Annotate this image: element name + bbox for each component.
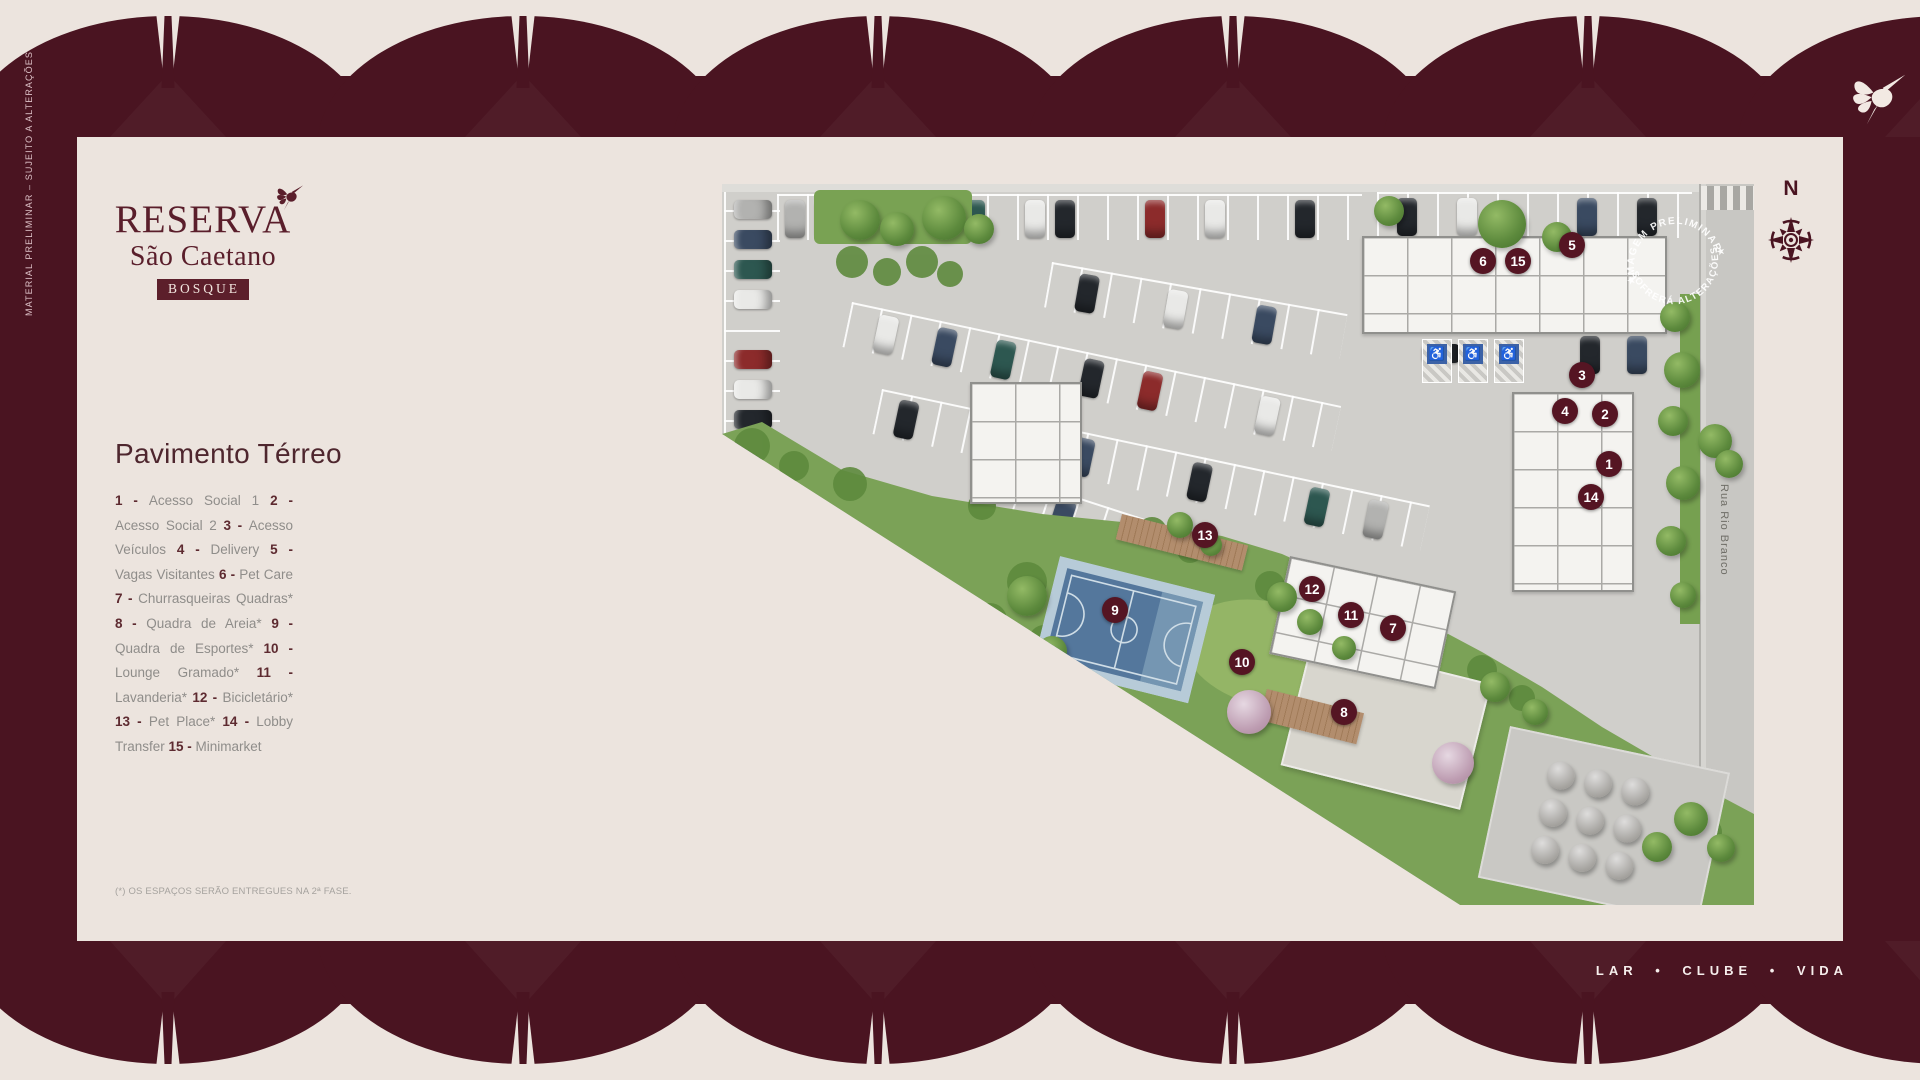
page-title: Pavimento Térreo bbox=[115, 438, 342, 470]
accessible-parking-stall: ♿ bbox=[1494, 339, 1524, 383]
plan-marker-10: 10 bbox=[1229, 649, 1255, 675]
tree bbox=[880, 212, 914, 246]
legend-item-number: 7 - bbox=[115, 591, 138, 606]
legend-item-label: Churrasqueiras Quadras* bbox=[138, 591, 293, 606]
plan-marker-6: 6 bbox=[1470, 248, 1496, 274]
legend-item-number: 13 - bbox=[115, 714, 149, 729]
building-block bbox=[1512, 392, 1634, 592]
logo-hummingbird-icon bbox=[274, 183, 306, 213]
preliminary-material-note: MATERIAL PRELIMINAR – SUJEITO A ALTERAÇÕ… bbox=[24, 86, 34, 316]
tree bbox=[1007, 576, 1047, 616]
legend-item-label: Bicicletário* bbox=[222, 690, 293, 705]
legend-item-number: 10 - bbox=[264, 641, 294, 656]
plan-marker-5: 5 bbox=[1559, 232, 1585, 258]
tree bbox=[1642, 832, 1672, 862]
legend-item-number: 2 - bbox=[270, 493, 293, 508]
brochure-page: MATERIAL PRELIMINAR – SUJEITO A ALTERAÇÕ… bbox=[0, 0, 1920, 1080]
tree bbox=[1297, 609, 1323, 635]
tree bbox=[1374, 196, 1404, 226]
compass-rose-icon bbox=[1766, 215, 1816, 265]
plan-marker-12: 12 bbox=[1299, 576, 1325, 602]
concrete-sphere bbox=[1581, 767, 1614, 800]
project-logo: RESERVA São Caetano BOSQUE bbox=[100, 199, 306, 300]
tree bbox=[1666, 466, 1700, 500]
pink-tree bbox=[1227, 690, 1271, 734]
legend-item-label: Pet Place* bbox=[149, 714, 215, 729]
tree bbox=[1478, 200, 1526, 248]
legend-item-label: Acesso Social 2 bbox=[115, 518, 217, 533]
legend-item-number: 6 - bbox=[219, 567, 239, 582]
tree bbox=[1656, 526, 1686, 556]
plan-marker-13: 13 bbox=[1192, 522, 1218, 548]
tree bbox=[1480, 672, 1510, 702]
wheelchair-icon: ♿ bbox=[1499, 344, 1519, 364]
wheelchair-icon: ♿ bbox=[1427, 344, 1447, 364]
plan-marker-7: 7 bbox=[1380, 615, 1406, 641]
concrete-sphere bbox=[1611, 812, 1644, 845]
concrete-sphere bbox=[1544, 759, 1577, 792]
legend-item-number: 12 - bbox=[192, 690, 222, 705]
legend-item-number: 4 - bbox=[177, 542, 211, 557]
plan-marker-2: 2 bbox=[1592, 401, 1618, 427]
hummingbird-icon bbox=[1849, 69, 1909, 131]
concrete-sphere bbox=[1573, 804, 1606, 837]
pink-tree bbox=[1432, 742, 1474, 784]
tree bbox=[1167, 512, 1193, 538]
stamp-text-top: IMAGEM PRELIMINAR bbox=[1613, 203, 1724, 282]
tree bbox=[1670, 582, 1696, 608]
accessible-parking-stall: ♿ bbox=[1422, 339, 1452, 383]
plan-marker-4: 4 bbox=[1552, 398, 1578, 424]
concrete-sphere bbox=[1619, 775, 1652, 808]
plan-marker-8: 8 bbox=[1331, 699, 1357, 725]
legend-item-number: 1 - bbox=[115, 493, 149, 508]
plan-marker-15: 15 bbox=[1505, 248, 1531, 274]
legend-item-label: Acesso Social 1 bbox=[149, 493, 259, 508]
tagline: LAR • CLUBE • VIDA bbox=[1596, 963, 1848, 978]
legend-item-label: Pet Care bbox=[239, 567, 293, 582]
concrete-sphere bbox=[1566, 841, 1599, 874]
tree bbox=[1658, 406, 1688, 436]
legend-item-label: Lavanderia* bbox=[115, 690, 187, 705]
legend-item-number: 11 - bbox=[257, 665, 293, 680]
legend-item-label: Quadra de Areia* bbox=[146, 616, 261, 631]
legend-item-label: Vagas Visitantes bbox=[115, 567, 215, 582]
legend-item-number: 15 - bbox=[169, 739, 196, 754]
tree bbox=[1715, 450, 1743, 478]
tree bbox=[840, 200, 880, 240]
tree bbox=[1707, 834, 1735, 862]
plan-marker-3: 3 bbox=[1569, 362, 1595, 388]
svg-text:IMAGEM PRELIMINAR: IMAGEM PRELIMINAR bbox=[1613, 203, 1724, 282]
tree bbox=[1267, 582, 1297, 612]
tree bbox=[964, 214, 994, 244]
legend-item-number: 14 - bbox=[222, 714, 256, 729]
legend-item-number: 9 - bbox=[271, 616, 293, 631]
legend: 1 - Acesso Social 1 2 - Acesso Social 2 … bbox=[115, 489, 293, 760]
footnote: (*) OS ESPAÇOS SERÃO ENTREGUES NA 2ª FAS… bbox=[115, 886, 352, 897]
logo-name: RESERVA bbox=[100, 199, 306, 241]
legend-item-label: Minimarket bbox=[196, 739, 262, 754]
logo-badge: BOSQUE bbox=[157, 279, 249, 300]
decorative-leaf-border-top bbox=[0, 0, 1920, 137]
tree bbox=[922, 196, 966, 240]
wheelchair-icon: ♿ bbox=[1463, 344, 1483, 364]
logo-name-text: RESERVA bbox=[115, 198, 292, 241]
stamp-star-right: ★ bbox=[1715, 245, 1727, 257]
decorative-leaf-border-bottom bbox=[0, 941, 1920, 1080]
concrete-sphere bbox=[1536, 796, 1569, 829]
concrete-sphere bbox=[1528, 833, 1561, 866]
plan-marker-9: 9 bbox=[1102, 597, 1128, 623]
north-label: N bbox=[1779, 177, 1803, 201]
legend-item-number: 3 - bbox=[223, 518, 248, 533]
tree bbox=[1522, 699, 1548, 725]
legend-item-label: Quadra de Esportes* bbox=[115, 641, 254, 656]
legend-item-number: 5 - bbox=[270, 542, 293, 557]
plan-marker-1: 1 bbox=[1596, 451, 1622, 477]
concrete-sphere bbox=[1603, 849, 1636, 882]
tree bbox=[1664, 352, 1700, 388]
accessible-parking-stall: ♿ bbox=[1458, 339, 1488, 383]
plan-marker-14: 14 bbox=[1578, 484, 1604, 510]
tree bbox=[1332, 636, 1356, 660]
tree bbox=[1674, 802, 1708, 836]
legend-item-label: Lounge Gramado* bbox=[115, 665, 239, 680]
plan-marker-11: 11 bbox=[1338, 602, 1364, 628]
legend-item-number: 8 - bbox=[115, 616, 146, 631]
legend-item-label: Delivery bbox=[211, 542, 260, 557]
building-block bbox=[970, 382, 1082, 504]
logo-subname: São Caetano bbox=[100, 242, 306, 272]
